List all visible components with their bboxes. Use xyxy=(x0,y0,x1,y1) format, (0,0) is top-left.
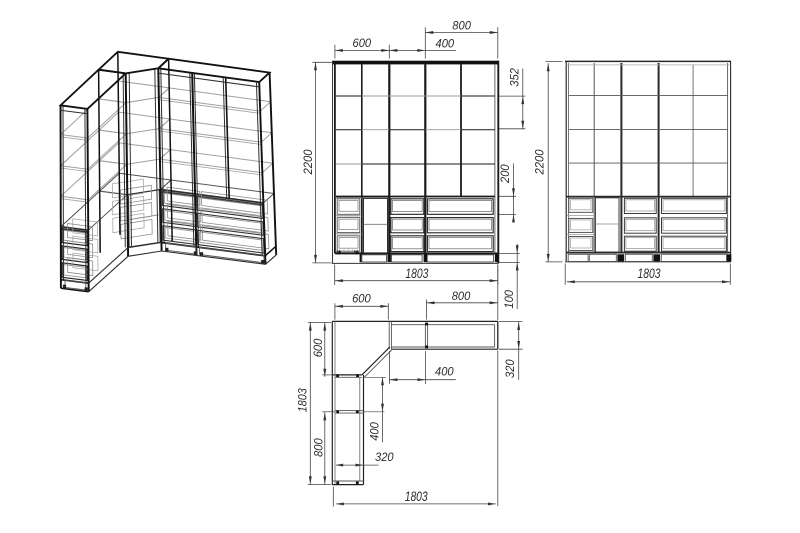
svg-text:200: 200 xyxy=(498,164,512,184)
svg-text:800: 800 xyxy=(452,19,471,33)
svg-text:100: 100 xyxy=(502,290,516,309)
svg-text:1803: 1803 xyxy=(405,489,428,504)
svg-text:320: 320 xyxy=(375,450,394,464)
svg-text:1803: 1803 xyxy=(405,266,428,281)
svg-text:600: 600 xyxy=(311,338,325,357)
svg-text:800: 800 xyxy=(312,438,326,457)
svg-text:400: 400 xyxy=(436,36,455,50)
svg-text:320: 320 xyxy=(503,359,517,378)
svg-text:352: 352 xyxy=(507,68,521,87)
svg-text:1803: 1803 xyxy=(296,388,310,412)
svg-text:600: 600 xyxy=(353,36,372,50)
svg-text:400: 400 xyxy=(367,422,381,441)
svg-text:400: 400 xyxy=(435,365,454,379)
svg-text:2200: 2200 xyxy=(532,149,546,175)
svg-text:1803: 1803 xyxy=(638,266,661,281)
svg-text:800: 800 xyxy=(452,289,471,303)
svg-text:2200: 2200 xyxy=(301,149,315,175)
svg-text:600: 600 xyxy=(352,291,371,305)
